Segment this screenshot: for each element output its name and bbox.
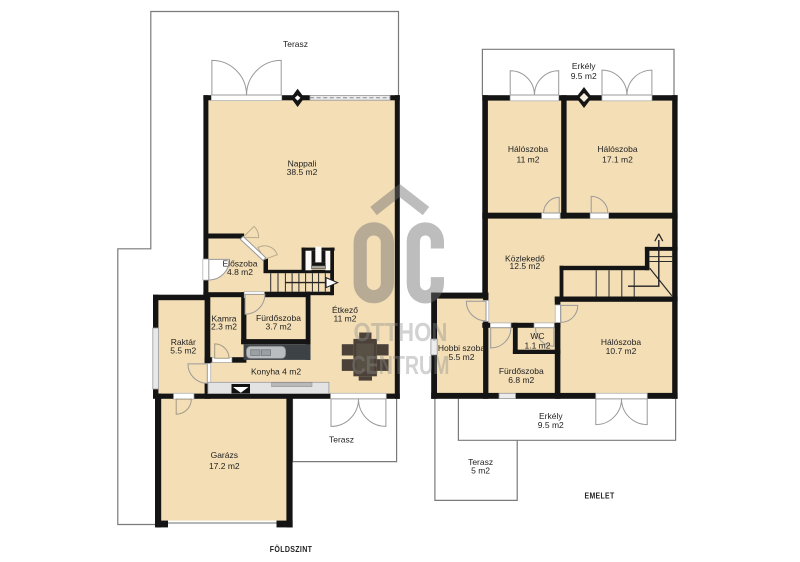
svg-text:Konyha 4 m2: Konyha 4 m2 <box>251 367 301 377</box>
svg-text:10.7 m2: 10.7 m2 <box>606 346 637 356</box>
svg-text:5.5 m2: 5.5 m2 <box>449 352 475 362</box>
svg-text:4.8 m2: 4.8 m2 <box>227 267 253 277</box>
svg-text:9.5 m2: 9.5 m2 <box>571 71 597 81</box>
svg-text:17.2 m2: 17.2 m2 <box>209 461 240 471</box>
svg-text:11 m2: 11 m2 <box>517 154 540 164</box>
svg-text:5.5 m2: 5.5 m2 <box>170 346 196 356</box>
svg-text:FÖLDSZINT: FÖLDSZINT <box>270 544 313 554</box>
svg-text:38.5 m2: 38.5 m2 <box>287 167 318 177</box>
svg-text:EMELET: EMELET <box>585 491 615 501</box>
svg-text:Terasz: Terasz <box>283 39 308 49</box>
svg-text:6.8 m2: 6.8 m2 <box>508 375 534 385</box>
svg-text:12.5 m2: 12.5 m2 <box>510 261 541 271</box>
svg-text:17.1 m2: 17.1 m2 <box>602 154 633 164</box>
svg-text:Terasz: Terasz <box>329 435 354 445</box>
svg-text:Erkély: Erkély <box>572 61 596 71</box>
svg-text:Hálószoba: Hálószoba <box>597 144 637 154</box>
svg-text:1.1 m2: 1.1 m2 <box>525 340 551 350</box>
svg-text:3.7 m2: 3.7 m2 <box>266 322 292 332</box>
svg-text:OTTHON: OTTHON <box>354 317 448 347</box>
svg-text:Hálószoba: Hálószoba <box>508 144 548 154</box>
svg-text:2.3 m2: 2.3 m2 <box>211 322 237 332</box>
svg-text:CENTRUM: CENTRUM <box>352 350 450 380</box>
svg-text:9.5 m2: 9.5 m2 <box>538 420 564 430</box>
svg-text:5 m2: 5 m2 <box>471 466 490 476</box>
svg-text:Garázs: Garázs <box>211 450 238 460</box>
